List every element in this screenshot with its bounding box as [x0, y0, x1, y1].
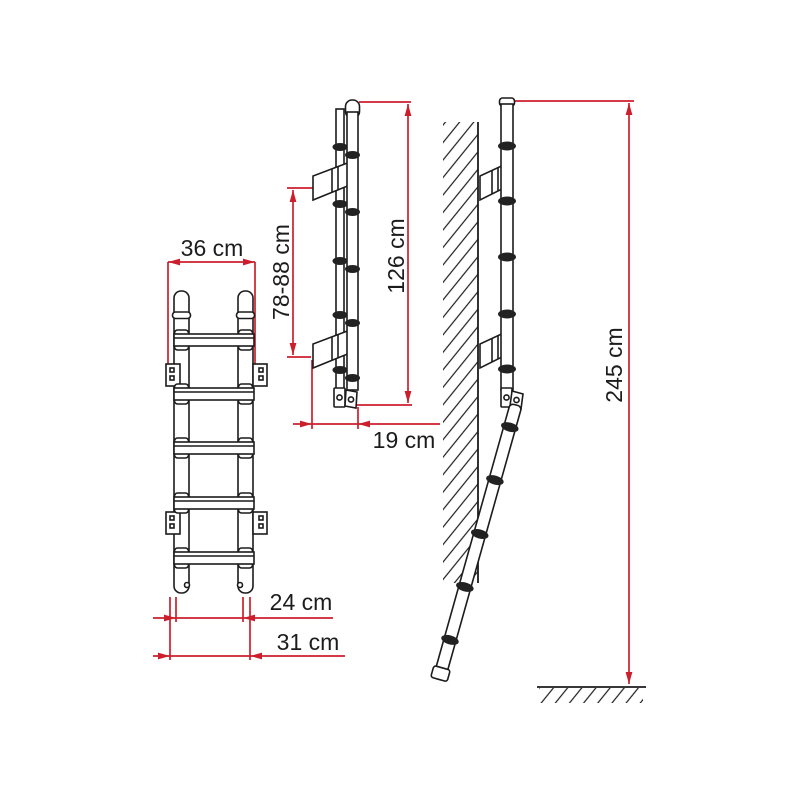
foot-rivet — [185, 583, 190, 588]
rung — [174, 497, 254, 509]
rung — [174, 388, 254, 400]
rung — [174, 334, 254, 346]
dimension-19cm — [293, 360, 440, 429]
dimension-label-31cm: 31 cm — [277, 629, 340, 655]
arrowhead-right-icon — [250, 653, 262, 660]
arrowhead-up-icon — [626, 103, 633, 115]
ground — [537, 687, 646, 703]
arrowhead-left-icon — [168, 259, 180, 266]
hinge-screw — [504, 395, 509, 400]
arrowhead-up-icon — [405, 104, 412, 116]
cap-ring — [237, 312, 255, 319]
rung — [174, 442, 254, 454]
foot-rivet — [238, 583, 243, 588]
arrowhead-right-icon — [243, 259, 255, 266]
arrowhead-up-icon — [290, 190, 297, 202]
wall-hatching — [443, 122, 478, 583]
cap-ring — [173, 312, 191, 319]
arrowhead-right-icon — [243, 615, 255, 622]
arrowhead-down-icon — [290, 343, 297, 355]
wall-section — [443, 122, 478, 583]
dimension-label-19cm: 19 cm — [373, 427, 436, 453]
dimension-label-245cm: 245 cm — [601, 327, 627, 402]
arrowhead-left-icon — [300, 421, 312, 428]
arrowhead-down-icon — [405, 391, 412, 403]
technical-drawing-page: 36 cm 24 cm 31 cm 78-88 cm 126 cm 19 cm … — [0, 0, 800, 800]
dimension-label-78-88cm: 78-88 cm — [268, 224, 294, 320]
arrowhead-right-icon — [358, 421, 370, 428]
hinge-screw — [337, 395, 342, 400]
side-view — [313, 100, 360, 408]
front-view — [166, 291, 267, 593]
dimension-label-36cm: 36 cm — [181, 235, 244, 261]
arrowhead-down-icon — [626, 672, 633, 684]
dimension-label-24cm: 24 cm — [270, 589, 333, 615]
side-hinge — [334, 388, 357, 408]
ladder-technical-drawing: 36 cm 24 cm 31 cm 78-88 cm 126 cm 19 cm … — [0, 0, 800, 800]
hinge-screw — [348, 397, 353, 402]
arrowhead-left-icon — [158, 653, 170, 660]
rung — [174, 552, 254, 564]
dimension-label-126cm: 126 cm — [383, 218, 409, 293]
hinge-screw — [514, 397, 519, 402]
ground-hatching — [539, 688, 643, 703]
